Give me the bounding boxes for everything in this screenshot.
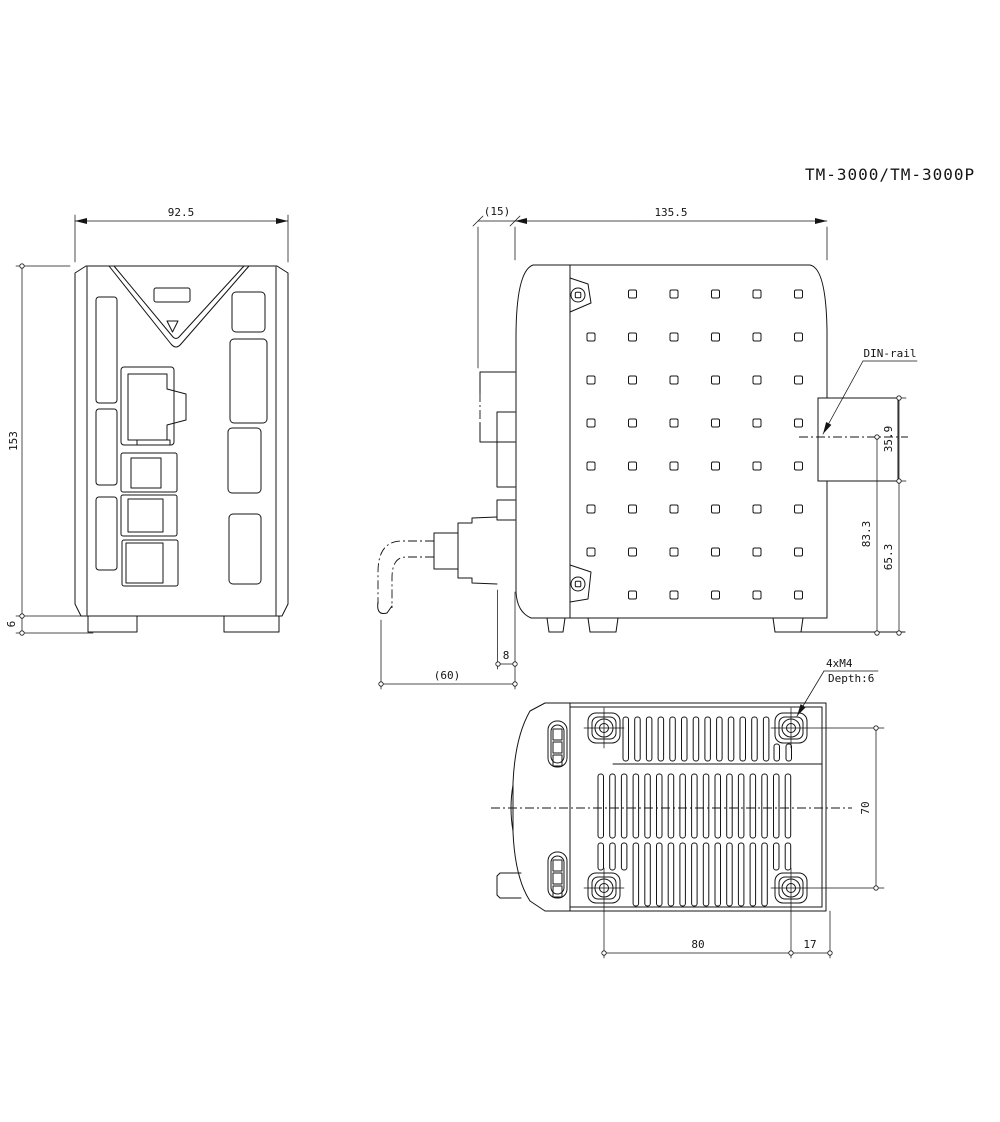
vent-slot: [680, 774, 686, 838]
vent-slot: [692, 843, 698, 906]
vent-square: [629, 591, 637, 599]
rail-center-dimension: 83.3: [860, 521, 873, 548]
front-foot-height-dimension: 6: [5, 621, 18, 628]
vent-square: [753, 333, 761, 341]
front-body-outline: [75, 266, 288, 616]
vent-slot: [727, 843, 733, 906]
cable-plug: [378, 517, 497, 614]
bottom-front-curve: [513, 703, 570, 911]
vent-slots: [598, 717, 792, 906]
vent-square: [670, 376, 678, 384]
connector-face-dimension: 8: [503, 649, 510, 662]
vent-square: [587, 419, 595, 427]
vent-square: [795, 376, 803, 384]
bottom-view: [491, 703, 884, 958]
front-bezel-seams: [87, 267, 276, 615]
vent-slot: [750, 843, 756, 906]
vent-square: [670, 419, 678, 427]
vent-slot: [740, 717, 746, 761]
vent-grid: [587, 290, 803, 599]
edge-offset-dimension: 17: [803, 938, 816, 951]
vent-slot: [703, 774, 709, 838]
vent-slot: [645, 774, 651, 838]
vent-slot: [763, 717, 769, 761]
vent-square: [670, 591, 678, 599]
bottom-side-connector: [497, 873, 521, 898]
vent-slot: [680, 843, 686, 906]
vent-square: [712, 290, 720, 298]
vent-square: [753, 376, 761, 384]
dimension-terminator: [875, 631, 879, 635]
vent-square: [795, 333, 803, 341]
vent-slot: [621, 774, 627, 838]
vent-square: [587, 333, 595, 341]
vent-slot: [668, 843, 674, 906]
vent-square: [587, 376, 595, 384]
vent-square: [629, 419, 637, 427]
dimension-terminator: [496, 662, 500, 666]
vent-square: [629, 462, 637, 470]
vent-slot: [610, 843, 616, 870]
side-depth-dimension: 135.5: [654, 206, 687, 219]
vent-square: [629, 376, 637, 384]
vent-square: [795, 290, 803, 298]
vent-square: [629, 548, 637, 556]
front-connector-profile: [480, 372, 515, 520]
vent-slot: [610, 774, 616, 838]
vent-slot: [623, 717, 629, 761]
side-body-outline: [516, 265, 827, 618]
dimension-terminator: [874, 726, 878, 730]
front-height-dimension: 153: [7, 431, 20, 451]
dimension-terminator: [875, 435, 879, 439]
vent-slot: [774, 774, 780, 838]
dimension-terminator: [897, 631, 901, 635]
vent-square: [753, 462, 761, 470]
indicator-triangle: [167, 321, 178, 332]
vent-square: [587, 462, 595, 470]
vent-slot: [750, 774, 756, 838]
dimension-terminator: [897, 479, 901, 483]
vent-slot: [692, 774, 698, 838]
vent-slot: [657, 774, 663, 838]
vent-slot: [738, 774, 744, 838]
din-height-dimension: 35.9: [882, 426, 895, 453]
vent-slot: [705, 717, 711, 761]
vent-slot: [785, 843, 791, 870]
dimension-terminator: [20, 614, 24, 618]
bottom-foot-bottom: [548, 852, 567, 898]
cable-end: [378, 602, 392, 614]
dimension-drawing: TM-3000/TM-3000P: [0, 0, 1000, 1122]
right-slot-column: [228, 292, 267, 584]
dimension-terminator: [513, 662, 517, 666]
dimension-terminator: [602, 951, 606, 955]
vent-square: [670, 333, 678, 341]
vent-square: [795, 505, 803, 513]
vent-slot: [682, 717, 688, 761]
vent-slot: [762, 774, 768, 838]
vent-square: [712, 333, 720, 341]
vent-slot: [738, 843, 744, 906]
vent-slot: [670, 717, 676, 761]
left-slot-column: [96, 297, 117, 570]
mount-vertical-dimension: 70: [859, 801, 872, 814]
dimension-terminator: [379, 682, 383, 686]
vent-square: [712, 591, 720, 599]
front-view: [75, 266, 288, 632]
vent-slot: [715, 774, 721, 838]
side-protrusion-dimension: (15): [484, 205, 511, 218]
vent-square: [712, 376, 720, 384]
vent-slot: [752, 717, 758, 761]
rail-bottom-dimension: 65.3: [882, 544, 895, 571]
vent-square: [629, 333, 637, 341]
vent-square: [795, 462, 803, 470]
cable-phantom-line: [378, 541, 434, 604]
vent-square: [712, 419, 720, 427]
vent-square: [587, 548, 595, 556]
vent-slot: [785, 774, 791, 838]
dimension-terminator: [20, 264, 24, 268]
vent-slot: [658, 717, 664, 761]
vent-slot: [646, 717, 652, 761]
vent-slot: [633, 774, 639, 838]
v-groove-outer: [109, 266, 249, 347]
vent-square: [795, 591, 803, 599]
din-rail-label: DIN-rail: [864, 347, 917, 360]
front-width-dimension: 92.5: [168, 206, 195, 219]
cable-clearance-dimension: (60): [434, 669, 461, 682]
vent-slot: [633, 843, 639, 906]
vent-slot: [717, 717, 723, 761]
vent-slot: [645, 843, 651, 906]
vent-square: [587, 505, 595, 513]
vent-slot: [728, 717, 734, 761]
center-connector-ports: [121, 453, 178, 586]
vent-square: [753, 548, 761, 556]
vent-square: [629, 290, 637, 298]
dimension-terminator: [897, 396, 901, 400]
side-view: [378, 265, 908, 632]
vent-slot: [598, 774, 604, 838]
vent-slot: [703, 843, 709, 906]
dimension-terminator: [828, 951, 832, 955]
vent-slot: [762, 843, 768, 906]
vent-slot: [693, 717, 699, 761]
vent-square: [753, 419, 761, 427]
vent-slot: [774, 744, 780, 761]
vent-square: [712, 505, 720, 513]
vent-slot: [598, 843, 604, 870]
dimension-terminators: [20, 264, 901, 955]
label-window: [154, 288, 190, 302]
mount-horizontal-dimension: 80: [691, 938, 704, 951]
screw-spec-line1: 4xM4: [826, 657, 853, 670]
vent-slot: [715, 843, 721, 906]
vent-square: [670, 290, 678, 298]
vent-square: [712, 548, 720, 556]
vent-slot: [727, 774, 733, 838]
drawing-title: TM-3000/TM-3000P: [805, 165, 975, 184]
vent-square: [795, 419, 803, 427]
vent-square: [629, 505, 637, 513]
vent-square: [753, 290, 761, 298]
dimension-terminator: [874, 886, 878, 890]
vent-square: [753, 591, 761, 599]
vent-slot: [774, 843, 780, 870]
screw-spec-line2: Depth:6: [828, 672, 874, 685]
bottom-foot-top: [548, 721, 567, 767]
vent-square: [753, 505, 761, 513]
vent-square: [670, 548, 678, 556]
technical-drawing-page: TM-3000/TM-3000P: [0, 0, 1000, 1122]
side-screw-tab-bottom: [570, 565, 591, 602]
vent-square: [795, 548, 803, 556]
dimension-terminator: [513, 682, 517, 686]
vent-slot: [635, 717, 641, 761]
side-screw-tab-top: [570, 278, 591, 312]
side-feet: [547, 618, 905, 632]
vent-slot: [668, 774, 674, 838]
vent-slot: [621, 843, 627, 870]
vent-slot: [657, 843, 663, 906]
dimension-terminator: [789, 951, 793, 955]
vent-square: [670, 462, 678, 470]
front-feet: [88, 616, 279, 632]
vent-square: [670, 505, 678, 513]
vent-square: [712, 462, 720, 470]
dimension-terminator: [20, 631, 24, 635]
ethernet-port: [121, 367, 186, 445]
